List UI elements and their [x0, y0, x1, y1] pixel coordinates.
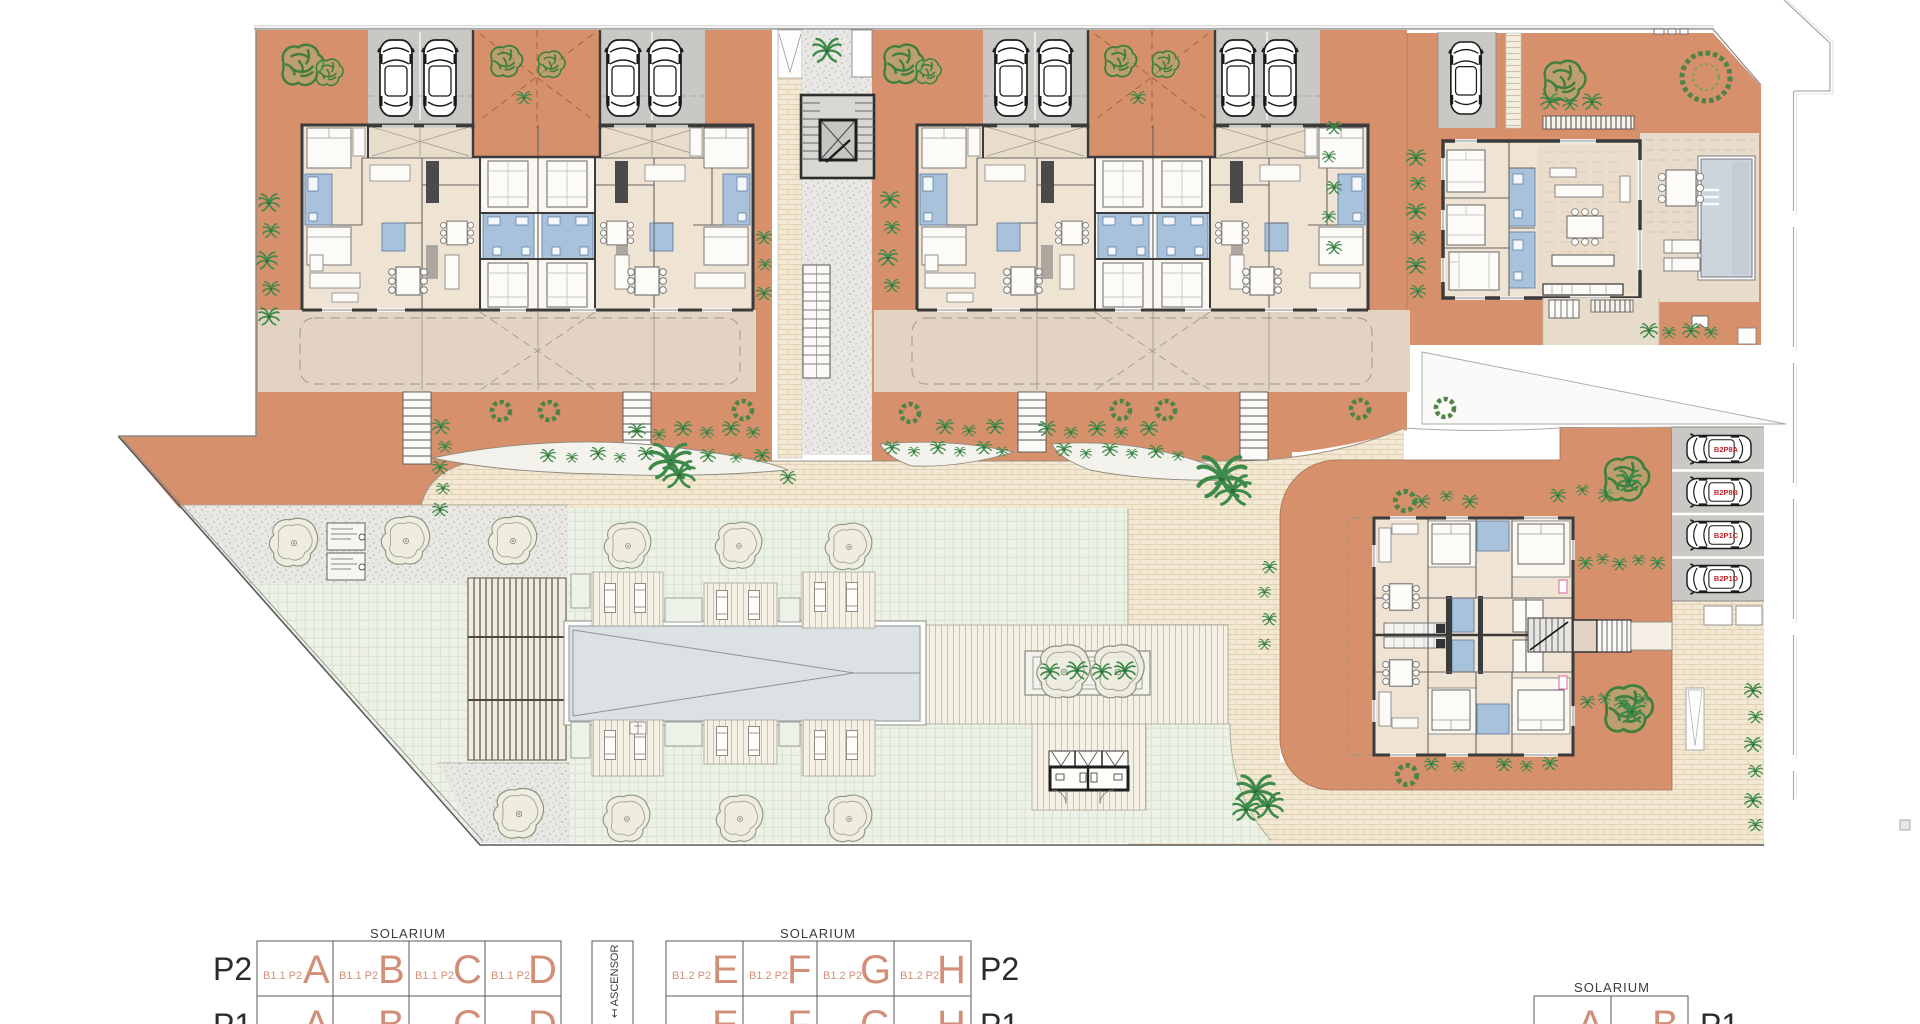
svg-text:↤ ASCENSOR: ↤ ASCENSOR [609, 945, 621, 1018]
svg-text:A: A [303, 948, 330, 992]
svg-text:C: C [453, 1003, 482, 1024]
svg-text:B1.1 P2: B1.1 P2 [491, 970, 530, 982]
svg-text:B2P8B: B2P8B [1714, 488, 1739, 497]
svg-text:F: F [787, 948, 811, 992]
svg-text:B2P1C: B2P1C [1714, 531, 1739, 540]
svg-text:A: A [1577, 1003, 1604, 1024]
svg-text:E: E [712, 1003, 739, 1024]
svg-text:A: A [303, 1003, 330, 1024]
svg-text:H: H [937, 948, 966, 992]
svg-text:B1.2 P2: B1.2 P2 [749, 970, 788, 982]
svg-text:B2P8A: B2P8A [1714, 445, 1739, 454]
svg-text:D: D [528, 1003, 557, 1024]
svg-text:B: B [1652, 1003, 1679, 1024]
svg-text:G: G [860, 1003, 891, 1024]
svg-text:F: F [787, 1003, 811, 1024]
svg-text:B: B [378, 1003, 405, 1024]
svg-text:P1: P1 [980, 1007, 1019, 1024]
svg-text:SOLARIUM: SOLARIUM [780, 926, 856, 941]
svg-text:B: B [378, 948, 405, 992]
svg-text:P1: P1 [1700, 1007, 1739, 1024]
svg-text:B1.1 P2: B1.1 P2 [415, 970, 454, 982]
svg-text:G: G [860, 948, 891, 992]
svg-text:B2P1D: B2P1D [1714, 574, 1739, 583]
svg-text:P2: P2 [980, 951, 1019, 987]
svg-text:P1: P1 [213, 1007, 252, 1024]
svg-text:SOLARIUM: SOLARIUM [1574, 980, 1650, 995]
svg-text:H: H [937, 1003, 966, 1024]
svg-text:B1.2 P2: B1.2 P2 [823, 970, 862, 982]
svg-text:SOLARIUM: SOLARIUM [370, 926, 446, 941]
svg-text:P2: P2 [213, 951, 252, 987]
svg-text:B1.1 P2: B1.1 P2 [263, 970, 302, 982]
svg-text:B1.2 P2: B1.2 P2 [672, 970, 711, 982]
svg-text:D: D [528, 948, 557, 992]
svg-text:C: C [453, 948, 482, 992]
svg-text:B1.1 P2: B1.1 P2 [339, 970, 378, 982]
svg-text:B1.2 P2: B1.2 P2 [900, 970, 939, 982]
svg-text:E: E [712, 948, 739, 992]
